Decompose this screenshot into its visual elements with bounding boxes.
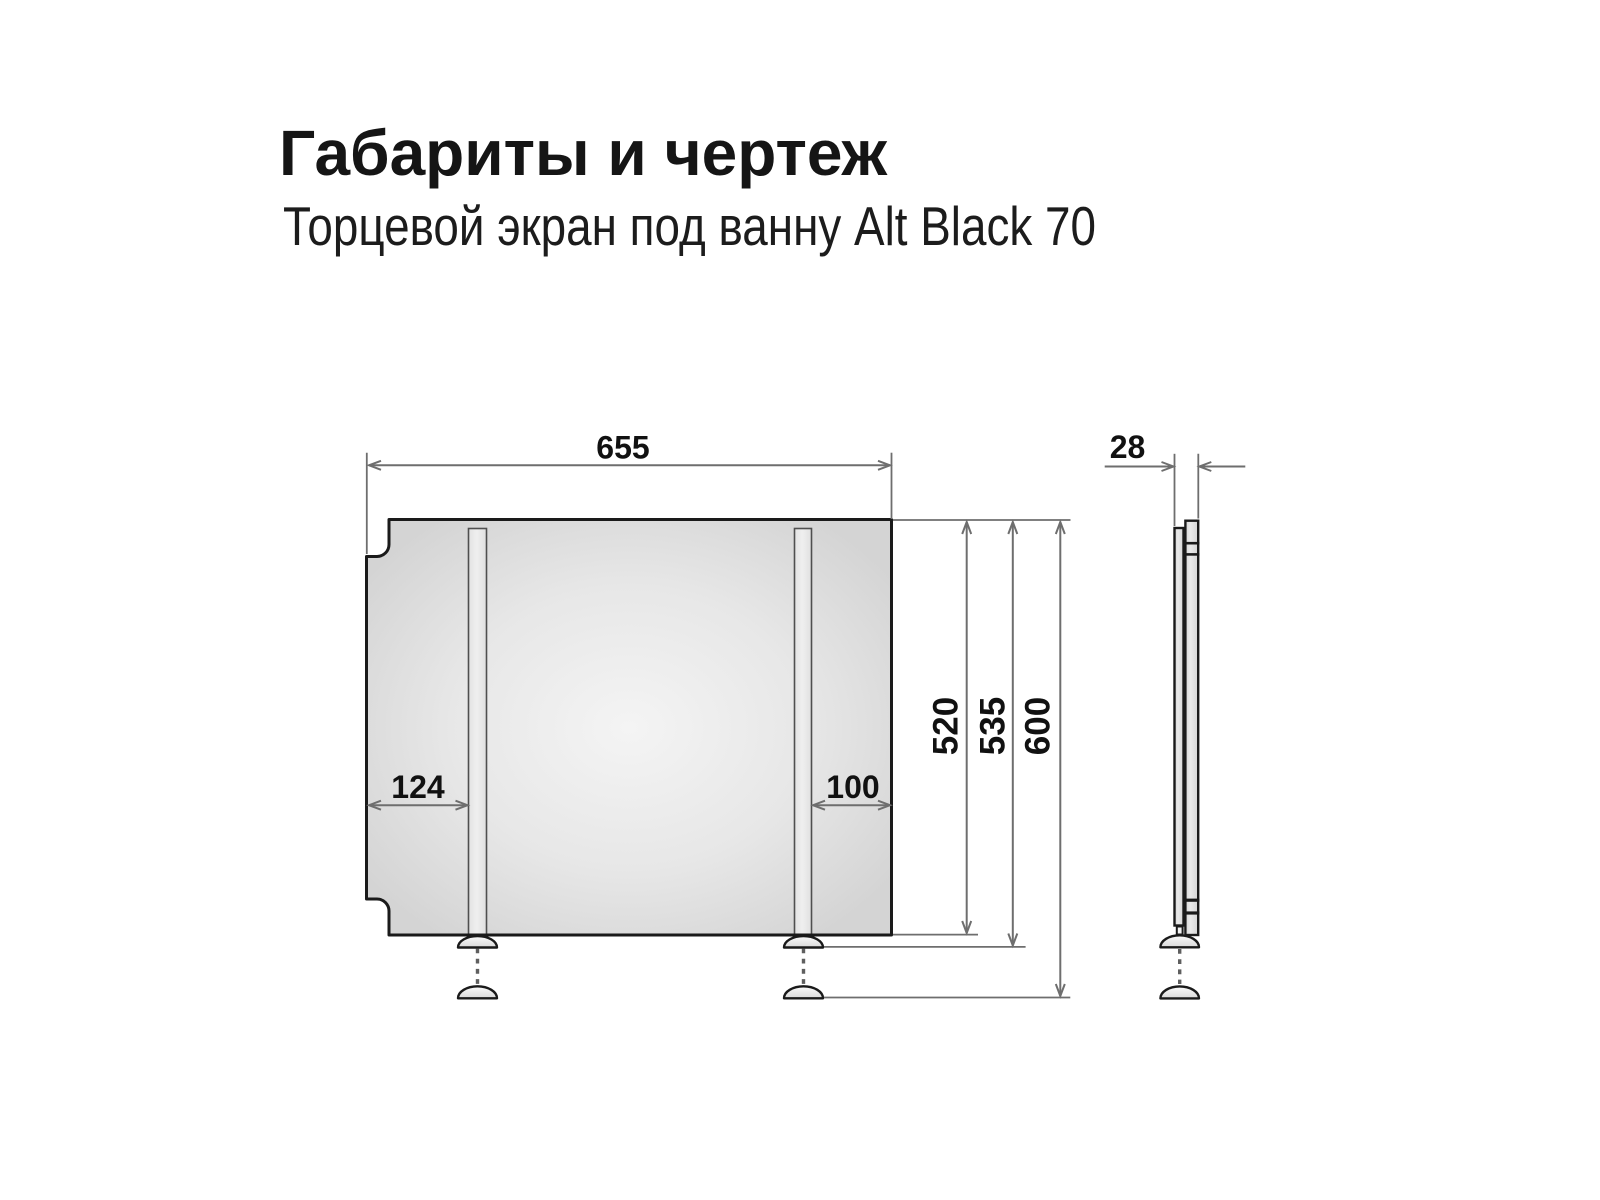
svg-text:100: 100 [826, 769, 879, 805]
svg-text:124: 124 [391, 769, 445, 805]
svg-text:520: 520 [927, 697, 966, 755]
svg-text:Габариты и чертеж: Габариты и чертеж [279, 117, 888, 189]
svg-text:28: 28 [1110, 429, 1146, 465]
svg-text:600: 600 [1019, 697, 1058, 755]
svg-text:Торцевой экран под ванну Alt B: Торцевой экран под ванну Alt Black 70 [283, 195, 1096, 257]
svg-text:655: 655 [596, 430, 649, 466]
svg-text:535: 535 [974, 697, 1013, 755]
